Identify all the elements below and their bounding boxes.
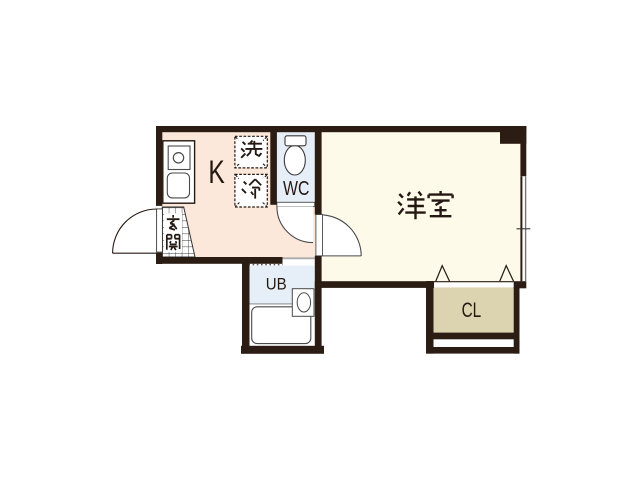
svg-text:UB: UB <box>266 276 287 294</box>
svg-text:K: K <box>208 155 224 191</box>
svg-text:CL: CL <box>462 297 482 321</box>
svg-text:WC: WC <box>283 176 309 200</box>
